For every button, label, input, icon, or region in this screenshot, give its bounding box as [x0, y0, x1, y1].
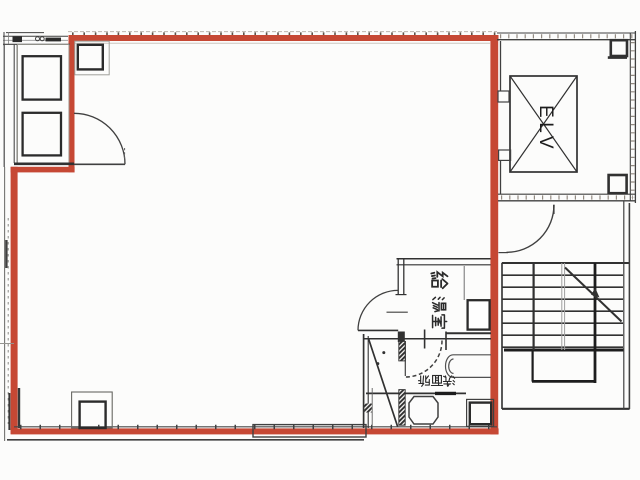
svg-text:ELV: ELV: [535, 105, 556, 153]
